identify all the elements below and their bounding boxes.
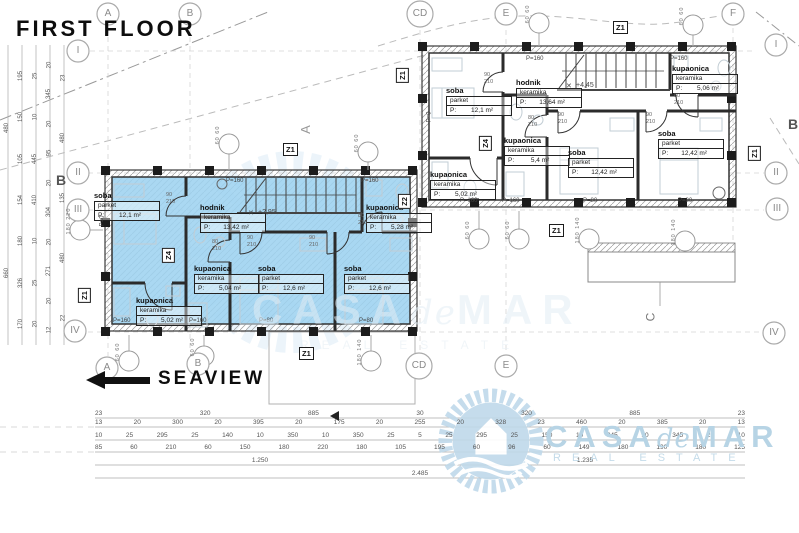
marker-z2: Z2 (398, 194, 411, 209)
grid-right-i: I (765, 34, 787, 56)
door-dim: 90210 (309, 235, 318, 249)
door-dim: 90210 (484, 72, 493, 86)
parapet-label: P=160 (113, 318, 131, 324)
dim-value: 23 (60, 75, 66, 82)
level-mark-x: ✕ (248, 209, 254, 217)
dim-value: 20 (46, 179, 52, 186)
grid-left-iv: IV (64, 320, 86, 342)
dim-value: 210 (166, 444, 177, 451)
room-label-white-soba-3: soba parket P:12,42 m² (658, 129, 724, 159)
dim-value: 195 (18, 71, 24, 81)
dim-value: 85 (95, 444, 102, 451)
seaview-arrow-icon (86, 371, 105, 389)
door-dim: 90210 (646, 112, 655, 126)
dim-value: 135 (60, 193, 66, 203)
dim-value: 105 (395, 444, 406, 451)
dim-value: 23 (95, 410, 102, 417)
dim-value: 60 (204, 444, 211, 451)
room-label-white-kupaonica-2: kupaonica keramika P:5,02 m² (430, 170, 496, 200)
room-label-white-kupaonica-3: kupaonica keramika P:5,06 m² (672, 64, 738, 94)
watermark-brand-center: CASAdeMAR (252, 286, 583, 334)
dim-value: 271 (46, 266, 52, 276)
room-label-blue-kupaonica-2: kupaonica keramika P:5,04 m² (194, 264, 260, 294)
dim-value: 350 (287, 432, 298, 439)
dim-value: 60 (473, 444, 480, 451)
dim-value: 180 (279, 444, 290, 451)
dim-value: 170 (18, 319, 24, 329)
dim-total-overall: 2.485 (95, 470, 745, 477)
marker-z1: Z1 (613, 21, 628, 34)
dim-total-left: 1.250 (95, 457, 425, 464)
parapet-label: P=0 (426, 112, 432, 123)
parapet-label: P=160 (189, 318, 207, 324)
grid-bottom-cd: CD (406, 353, 432, 379)
dim-value: 20 (457, 419, 464, 426)
dim-value: 10 (257, 432, 264, 439)
parapet-label: P=160 (526, 56, 544, 62)
section-cut-arrow-icon (330, 411, 339, 421)
section-c-label: C (643, 313, 657, 322)
opening-dim-label: 180 140 (671, 217, 677, 247)
dim-value: 180 (18, 236, 24, 246)
grid-bottom-e: E (495, 355, 517, 377)
dim-value: 60 (130, 444, 137, 451)
dim-value: 12 (46, 327, 52, 334)
grid-left-i: I (67, 40, 89, 62)
axis-b-left: B (56, 172, 66, 188)
marker-z4: Z4 (479, 136, 492, 151)
dim-value: 140 (222, 432, 233, 439)
parapet-label: P=160 (502, 198, 520, 204)
dim-value: 150 (18, 112, 24, 122)
dim-value: 30 (416, 410, 423, 417)
dim-value: 20 (32, 321, 38, 328)
level-mark-x: ✕ (566, 82, 572, 90)
dim-chain-left-4: 20345209520304202712012 (43, 50, 55, 345)
room-label-white-kupaonica-1: kupaonica keramika P:5,4 m² (504, 136, 570, 166)
dim-value: 20 (46, 297, 52, 304)
axis-b-right: B (788, 116, 798, 132)
dim-value: 13 (95, 419, 102, 426)
marker-z1: Z1 (396, 68, 409, 83)
dim-value: 350 (353, 432, 364, 439)
dim-value: 180 (356, 444, 367, 451)
dim-value: 96 (508, 444, 515, 451)
dim-chain-left-2: 195150105154180326170 (15, 55, 27, 345)
dim-value: 95 (46, 150, 52, 157)
floor-plan-page: FIRST FLOOR SEAVIEW A B CD E F I II III … (0, 0, 799, 533)
dim-value: 25 (445, 432, 452, 439)
dim-value: 25 (387, 432, 394, 439)
dim-value: 10 (95, 432, 102, 439)
dim-value: 25 (32, 279, 38, 286)
grid-right-iv: IV (763, 322, 785, 344)
dim-value: 10 (32, 114, 38, 121)
dim-value: 304 (46, 207, 52, 217)
seaview-arrow-bar (104, 377, 150, 384)
dim-value: 20 (134, 419, 141, 426)
dim-value: 255 (415, 419, 426, 426)
grid-right-iii: III (766, 198, 788, 220)
grid-top-e: E (495, 3, 517, 25)
dim-value: 480 (4, 122, 10, 132)
dim-value: 20 (46, 61, 52, 68)
opening-dim-label: 60 60 (215, 120, 221, 150)
door-dim: 80210 (674, 93, 683, 107)
marker-z1: Z1 (283, 143, 298, 156)
dim-value: 660 (4, 267, 10, 277)
dim-value: 105 (18, 154, 24, 164)
dim-value: 10 (32, 238, 38, 245)
dim-row-1: 233208853032088523 (95, 410, 745, 417)
door-dim: 90210 (247, 235, 256, 249)
grid-right-ii: II (765, 162, 787, 184)
page-title: FIRST FLOOR (16, 16, 196, 42)
dim-value: 885 (308, 410, 319, 417)
dim-value: 5 (418, 432, 422, 439)
dim-value: 328 (495, 419, 506, 426)
seaview-label: SEAVIEW (158, 368, 265, 390)
dim-value: 25 (511, 432, 518, 439)
dim-chain-left-3: 2510445410102520 (29, 55, 41, 345)
door-dim: 80210 (212, 239, 221, 253)
grid-left-iii: III (67, 199, 89, 221)
dim-value: 20 (376, 419, 383, 426)
parapet-label: P=160 (670, 56, 688, 62)
section-a-label: A (298, 125, 313, 134)
dim-value: 195 (434, 444, 445, 451)
dim-value: 410 (32, 195, 38, 205)
door-dim: 90210 (166, 192, 175, 206)
parapet-label: P=80 (678, 198, 692, 204)
level-label-white: +4,45 (576, 82, 594, 89)
room-label-blue-hodnik: hodnik keramika P:13,42 m² (200, 203, 266, 233)
grid-left-ii: II (67, 162, 89, 184)
grid-top-cd: CD (407, 1, 433, 27)
dim-value: 345 (46, 89, 52, 99)
dim-value: 25 (126, 432, 133, 439)
dim-value: 295 (157, 432, 168, 439)
dim-value: 395 (253, 419, 264, 426)
dim-value: 320 (521, 410, 532, 417)
watermark-tagline-center: REAL ESTATE (300, 338, 522, 352)
marker-z1: Z1 (748, 146, 761, 161)
dim-value: 445 (32, 154, 38, 164)
watermark-brand-bottom: CASAdeMAR (545, 419, 779, 455)
room-label-white-soba-1: soba parket P:12,1 m² (446, 86, 512, 116)
parapet-label: P=80 (583, 198, 597, 204)
dim-value: 480 (60, 253, 66, 263)
marker-z1: Z1 (299, 347, 314, 360)
marker-z1: Z1 (78, 288, 91, 303)
parapet-label: P=160 (226, 178, 244, 184)
opening-dim-label: 60 60 (525, 0, 531, 29)
room-label-white-hodnik: hodnik keramika P:13,64 m² (516, 78, 582, 108)
opening-dim-label: 180 140 (575, 215, 581, 245)
marker-z4: Z4 (162, 248, 175, 263)
dim-value: 22 (60, 315, 66, 322)
door-dim: 80210 (358, 213, 367, 227)
dim-chain-left-5: 2348013548022 (57, 48, 69, 348)
dim-value: 885 (629, 410, 640, 417)
dim-value: 25 (191, 432, 198, 439)
dim-value: 20 (295, 419, 302, 426)
dim-chain-left-1: 480660 (1, 55, 13, 345)
marker-z1: Z1 (549, 224, 564, 237)
dim-value: 300 (172, 419, 183, 426)
dim-value: 23 (537, 419, 544, 426)
opening-dim-label: 60 60 (354, 128, 360, 158)
door-dim: 90210 (558, 112, 567, 126)
level-label-blue: +2,95 (258, 209, 276, 216)
parapet-label: P=160 (361, 178, 379, 184)
dim-value: 320 (200, 410, 211, 417)
dim-value: 154 (18, 195, 24, 205)
dim-value: 295 (476, 432, 487, 439)
dim-value: 480 (60, 133, 66, 143)
dim-value: 150 (240, 444, 251, 451)
dim-value: 220 (317, 444, 328, 451)
dim-value: 20 (214, 419, 221, 426)
dim-value: 23 (738, 410, 745, 417)
room-label-white-soba-2: soba parket P:12,42 m² (568, 148, 634, 178)
opening-dim-label: 60 60 (465, 215, 471, 245)
parapet-label: P=160 (460, 198, 478, 204)
parapet-label: P=0 (99, 216, 105, 227)
dim-value: 20 (46, 120, 52, 127)
opening-dim-label: 60 60 (505, 215, 511, 245)
dim-value: 25 (32, 72, 38, 79)
watermark-tagline-bottom: REAL ESTATE (553, 452, 747, 464)
door-dim: 80210 (528, 115, 537, 129)
dim-value: 10 (322, 432, 329, 439)
opening-dim-label: 60 60 (679, 1, 685, 31)
grid-top-f: F (722, 3, 744, 25)
dim-value: 20 (46, 238, 52, 245)
terrace-white (588, 243, 735, 306)
dim-value: 326 (18, 278, 24, 288)
